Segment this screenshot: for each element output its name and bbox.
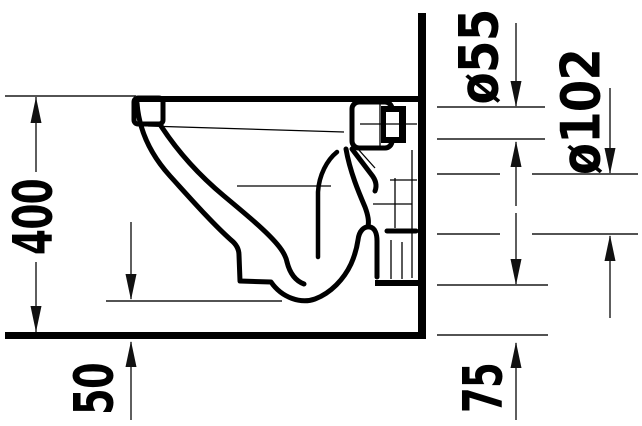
outer-bowl-contour (137, 103, 377, 301)
dimension-label-rim-height: 400 (2, 179, 65, 255)
arrowhead-down-icon (31, 306, 42, 332)
arrowhead-up-icon (31, 97, 42, 123)
arrowhead-down-icon (511, 81, 522, 107)
arrowhead-up-icon (605, 235, 616, 261)
dimension-label-supply-diameter: ø55 (448, 10, 511, 105)
inner-rim-edge-line (148, 126, 344, 132)
inner-bowl-rear-curve (346, 149, 368, 226)
toilet-side-elevation-drawing: 400 50 ø55 (0, 0, 642, 426)
trap-weir-line (318, 152, 337, 257)
inner-bowl-front-curve (161, 126, 304, 284)
arrowhead-down-icon (511, 259, 522, 285)
floor-line (5, 332, 426, 339)
arrowhead-up-icon (126, 341, 137, 367)
dimension-label-drain-diameter: ø102 (550, 49, 613, 175)
arrowhead-down-icon (126, 274, 137, 300)
dimension-floor-clearance: 50 (63, 222, 137, 420)
wall-section-line (418, 13, 426, 339)
dimension-supply-diameter: ø55 (437, 10, 545, 207)
dimension-label-floor-clearance: 50 (63, 363, 126, 415)
dimension-label-outlet-height: 75 (452, 363, 515, 413)
dimension-outlet-height: 75 (437, 213, 548, 420)
building-structure (5, 13, 426, 339)
flush-connection-detail (352, 102, 417, 279)
arrowhead-up-icon (511, 141, 522, 167)
toilet-profile (106, 98, 421, 301)
dimension-rim-height: 400 (2, 96, 137, 332)
technical-drawing-canvas: 400 50 ø55 (0, 0, 642, 426)
